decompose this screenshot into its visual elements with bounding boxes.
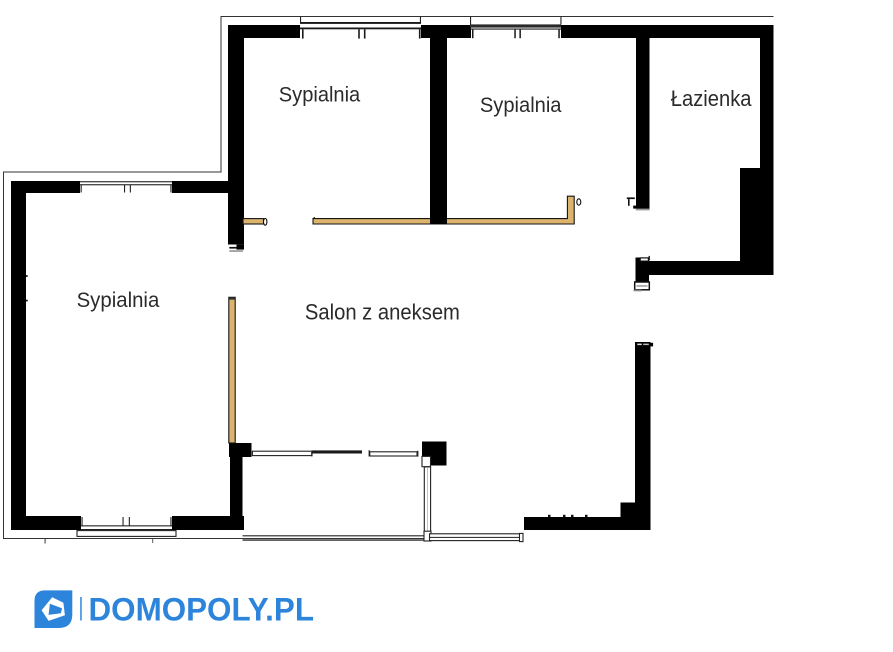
svg-text:Sypialnia: Sypialnia <box>77 288 160 312</box>
svg-text:Sypialnia: Sypialnia <box>279 82 360 106</box>
svg-text:Sypialnia: Sypialnia <box>480 93 562 117</box>
svg-text:Salon z aneksem: Salon z aneksem <box>305 299 460 324</box>
svg-text:Łazienka: Łazienka <box>671 86 752 111</box>
svg-text:DOMOPOLY.PL: DOMOPOLY.PL <box>89 591 315 627</box>
